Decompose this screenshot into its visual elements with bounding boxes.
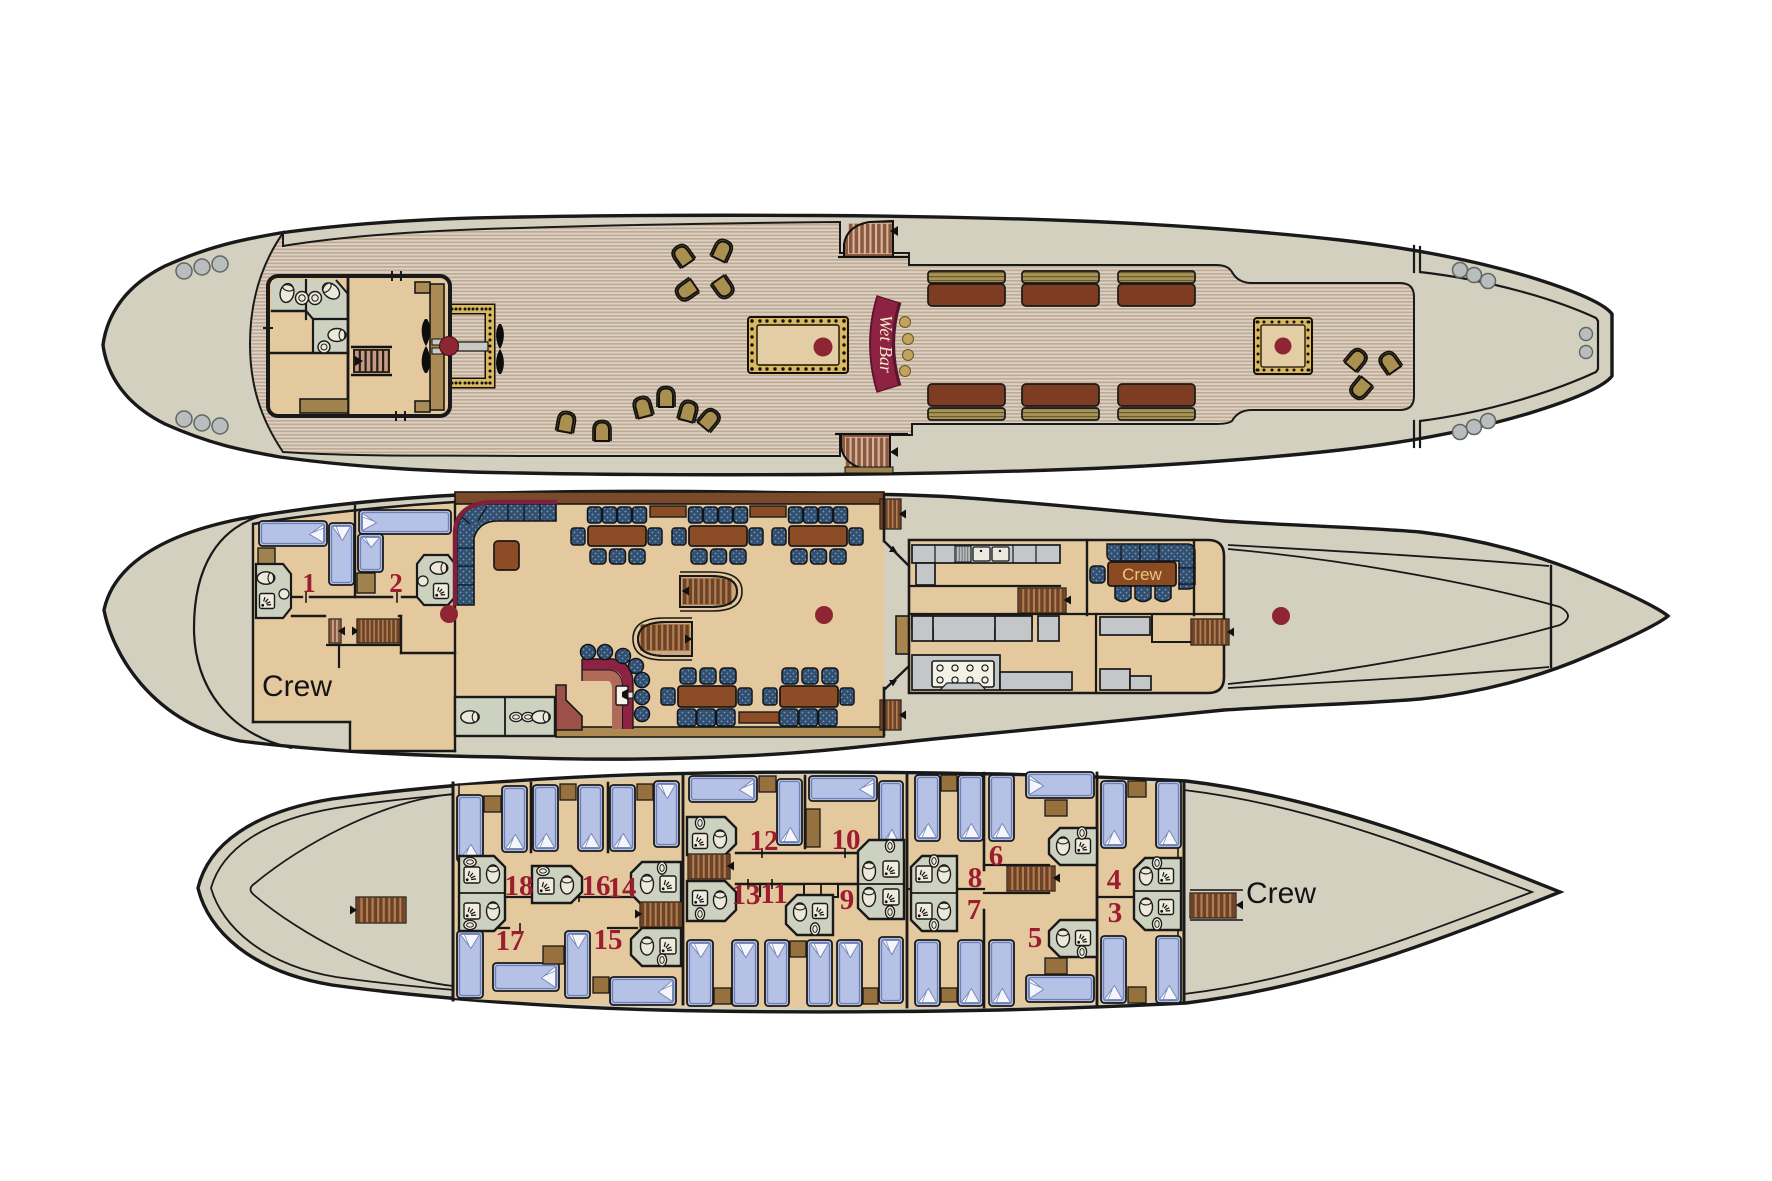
svg-text:11: 11 [760, 878, 787, 910]
svg-text:3: 3 [1108, 897, 1123, 929]
svg-text:8: 8 [968, 862, 983, 894]
svg-text:5: 5 [1028, 922, 1043, 954]
svg-text:Crew: Crew [262, 670, 332, 703]
svg-text:1: 1 [302, 568, 316, 598]
svg-text:2: 2 [389, 568, 403, 598]
svg-text:Wet Bar: Wet Bar [876, 315, 896, 374]
svg-text:13: 13 [732, 879, 761, 911]
svg-text:14: 14 [608, 872, 637, 904]
svg-text:Crew: Crew [1122, 565, 1162, 584]
svg-text:Crew: Crew [1246, 877, 1316, 910]
svg-text:15: 15 [594, 924, 623, 956]
svg-text:16: 16 [582, 870, 611, 902]
svg-text:17: 17 [496, 925, 525, 957]
svg-text:18: 18 [505, 870, 534, 902]
svg-text:10: 10 [832, 824, 861, 856]
svg-text:7: 7 [967, 894, 982, 926]
svg-text:9: 9 [840, 884, 855, 916]
svg-text:6: 6 [989, 840, 1004, 872]
svg-text:12: 12 [750, 825, 779, 857]
svg-text:4: 4 [1107, 864, 1122, 896]
